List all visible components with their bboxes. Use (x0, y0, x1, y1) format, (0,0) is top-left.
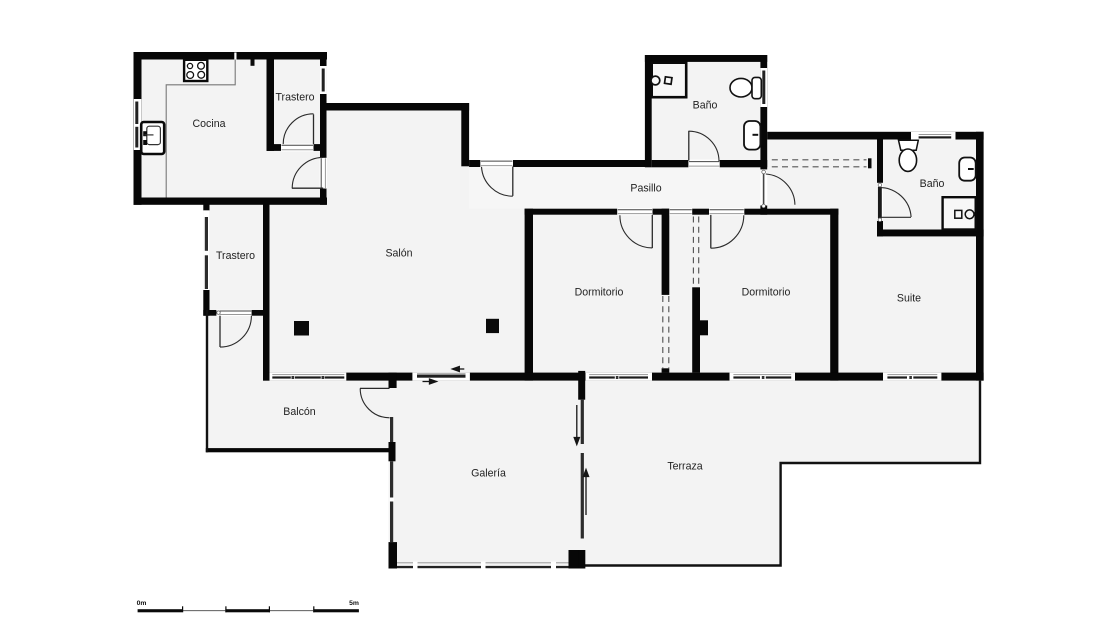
svg-text:Terraza: Terraza (667, 461, 702, 473)
svg-text:Baño: Baño (920, 178, 945, 190)
svg-text:Salón: Salón (385, 248, 412, 260)
svg-text:Balcón: Balcón (283, 406, 315, 418)
svg-text:5m: 5m (349, 600, 359, 607)
svg-text:Suite: Suite (897, 293, 921, 305)
svg-text:Dormitorio: Dormitorio (742, 287, 791, 299)
svg-text:Baño: Baño (693, 100, 718, 112)
svg-text:Galería: Galería (471, 468, 506, 480)
svg-text:Dormitorio: Dormitorio (575, 287, 624, 299)
svg-text:Cocina: Cocina (193, 118, 226, 130)
svg-text:Trastero: Trastero (216, 250, 255, 262)
svg-text:0m: 0m (137, 600, 147, 607)
svg-text:Trastero: Trastero (275, 92, 314, 104)
svg-text:Pasillo: Pasillo (630, 183, 661, 195)
